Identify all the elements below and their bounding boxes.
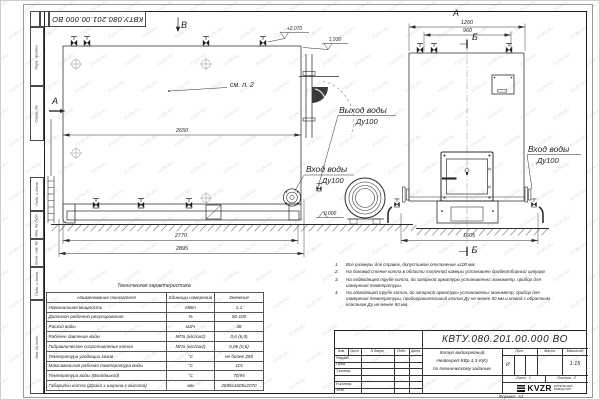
tb-lit-value: И xyxy=(502,355,514,375)
tb-lit-label: Лит. xyxy=(502,348,537,355)
dim-960: 960 xyxy=(463,29,472,35)
section-b-label-top: Б xyxy=(472,33,478,42)
see-note-label: см. п. 2 xyxy=(230,82,254,89)
dim-2895: 2895 xyxy=(176,247,188,253)
tb-row-prov: Пров. xyxy=(336,363,346,367)
note-number: 3. xyxy=(335,277,346,289)
note-number: 4. xyxy=(335,290,346,308)
kvzr-logo-text: KVZR xyxy=(527,384,551,393)
view-b-label: В xyxy=(181,21,187,30)
tb-title-line1: Котел водогрейный xyxy=(423,349,501,357)
section-b-label-bottom: Б xyxy=(472,246,478,255)
kvzr-logo-icon xyxy=(517,385,525,392)
tech-row: Температура уходящих газов°Сне более 250 xyxy=(47,351,264,361)
tb-row-nkontr: Н.контр. xyxy=(336,383,352,387)
note-text: На боковой стенке котла в области топочн… xyxy=(346,269,561,275)
tech-row: Гидравлическое сопротивление котлаМПа (к… xyxy=(47,341,264,351)
note-item: 4.На отводящей трубе котла, до запорной … xyxy=(335,290,561,308)
tb-scale-label: Масштаб xyxy=(562,348,588,355)
tb-col-izm: Изм. xyxy=(335,348,348,355)
inlet-side-label-line1: Вход воды xyxy=(306,165,347,174)
title-block: КВТУ.080.201.00.000 ВО Изм. Лист N докум… xyxy=(334,330,587,394)
note-item: 3.На подводящей трубе котла, до запорной… xyxy=(335,277,561,289)
tb-sheet: Лист1 xyxy=(502,375,545,382)
dim-1605: 1605 xyxy=(463,234,475,240)
tb-col-ndokum: N докум. xyxy=(361,348,394,355)
tech-col-header: Наименование показателя xyxy=(47,293,167,303)
tb-title-line2: Heatexpert-КВр-1,1-К(К) xyxy=(423,357,501,365)
outlet-label-line2: Ду100 xyxy=(356,118,378,126)
note-text: Все размеры для справок, допустимое откл… xyxy=(346,262,561,268)
outlet-label-line1: Выход воды xyxy=(339,106,387,115)
notes-list: 1.Все размеры для справок, допустимое от… xyxy=(335,262,561,309)
drawing-sheet: КВТУ.080.201.00.000 ВО Перв. примен. Спр… xyxy=(0,0,600,400)
tech-table: Наименование показателяЕдиницы измерения… xyxy=(46,292,264,391)
tb-col-data: Дата xyxy=(409,348,422,355)
dim-2650: 2650 xyxy=(176,129,188,135)
tb-title-line3: по техническому заданию xyxy=(423,365,501,373)
tech-row: Номинальная мощностьМВт1,1 xyxy=(47,302,264,312)
tb-mass-label: Масса xyxy=(537,348,562,355)
tech-row: Диапазон рабочего регулирования%50-100 xyxy=(47,312,264,322)
tb-row-utv: Утв. xyxy=(336,389,345,393)
note-text: На отводящей трубе котла, до запорной ар… xyxy=(346,290,561,308)
tech-row: Температура воды (Вход/выход)°С70/95 xyxy=(47,371,264,381)
view-a-label: А xyxy=(453,9,459,18)
tech-table-title: Техническая характеристика xyxy=(117,284,190,289)
inlet-side-label-line2: Ду100 xyxy=(322,177,344,185)
tech-row: Рабочее давление водыМПа (кгс/см2)0,6 (6… xyxy=(47,332,264,342)
tb-row-tkontr: Т.контр. xyxy=(336,370,351,374)
note-text: На подводящей трубе котла, до запорной а… xyxy=(346,277,561,289)
dim-2770: 2770 xyxy=(175,234,187,240)
tb-scale-value: 1:15 xyxy=(562,355,588,375)
format-note: Формат А3 xyxy=(499,395,523,399)
note-number: 1. xyxy=(335,262,346,268)
tb-row-razrab: Разраб. xyxy=(336,357,350,361)
tech-table-header-row: Наименование показателяЕдиницы измерения… xyxy=(47,293,264,303)
inlet-front-label-line1: Вход воды xyxy=(528,145,569,154)
title-block-doc-number: КВТУ.080.201.00.000 ВО xyxy=(422,331,588,348)
elevation-valve-top: +2,070 xyxy=(287,27,302,32)
note-item: 1.Все размеры для справок, допустимое от… xyxy=(335,262,561,268)
dim-1260: 1260 xyxy=(461,21,473,27)
note-number: 2. xyxy=(335,269,346,275)
elevation-ground: 0.000 xyxy=(324,212,337,217)
inlet-front-label-line2: Ду100 xyxy=(537,157,559,165)
tech-row: Максимальная рабочая температура воды°С1… xyxy=(47,361,264,371)
section-a-label: А xyxy=(52,97,58,106)
tech-col-header: Единицы измерения xyxy=(167,293,215,303)
tb-sheets: Листов2 xyxy=(545,375,588,382)
tech-row: Расход водым3/ч38 xyxy=(47,322,264,332)
tech-row: Габариты котла (Длина х ширина х высота)… xyxy=(47,381,264,391)
company-logo: KVZR КОТЕЛЬНЫЙ ЗАВОД РЭП xyxy=(502,382,588,394)
tech-col-header: Значение xyxy=(215,293,264,303)
kvzr-logo-subtext: КОТЕЛЬНЫЙ ЗАВОД РЭП xyxy=(554,385,573,392)
elevation-boiler-top: 1,930 xyxy=(329,38,342,43)
tb-col-list: Лист xyxy=(348,348,361,355)
tb-col-podp: Подп. xyxy=(394,348,409,355)
note-item: 2.На боковой стенке котла в области топо… xyxy=(335,269,561,275)
